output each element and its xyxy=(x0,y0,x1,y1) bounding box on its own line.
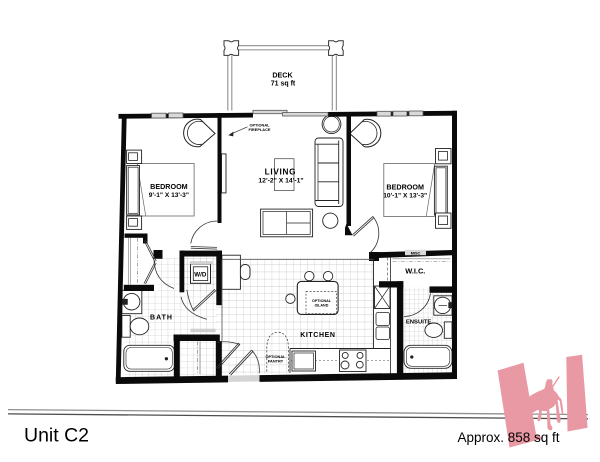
svg-text:KITCHEN: KITCHEN xyxy=(300,332,335,339)
svg-text:Unit C2: Unit C2 xyxy=(24,425,89,447)
svg-text:PANTRY: PANTRY xyxy=(268,359,284,364)
svg-text:12'-2" X 14'-1": 12'-2" X 14'-1" xyxy=(258,177,303,184)
svg-text:BEDROOM: BEDROOM xyxy=(150,182,188,191)
svg-text:W.I.C.: W.I.C. xyxy=(405,267,425,276)
svg-text:Approx. 858 sq ft: Approx. 858 sq ft xyxy=(457,430,559,445)
svg-text:W/D: W/D xyxy=(194,272,207,279)
svg-text:LIVING: LIVING xyxy=(265,168,297,177)
svg-text:71 sq ft: 71 sq ft xyxy=(271,80,296,87)
svg-text:BEDROOM: BEDROOM xyxy=(386,183,424,192)
svg-text:9'-1" X 13'-3": 9'-1" X 13'-3" xyxy=(149,192,189,199)
svg-text:BATH: BATH xyxy=(150,315,173,322)
svg-text:ENSUITE: ENSUITE xyxy=(406,319,432,325)
svg-text:MISC: MISC xyxy=(411,251,421,255)
svg-text:DECK: DECK xyxy=(272,70,293,79)
svg-text:10'-1" X 13'-3": 10'-1" X 13'-3" xyxy=(383,193,427,200)
svg-text:OPTIONAL: OPTIONAL xyxy=(312,299,332,303)
svg-text:ISLAND: ISLAND xyxy=(315,304,329,308)
svg-text:FIREPLACE: FIREPLACE xyxy=(248,127,270,132)
